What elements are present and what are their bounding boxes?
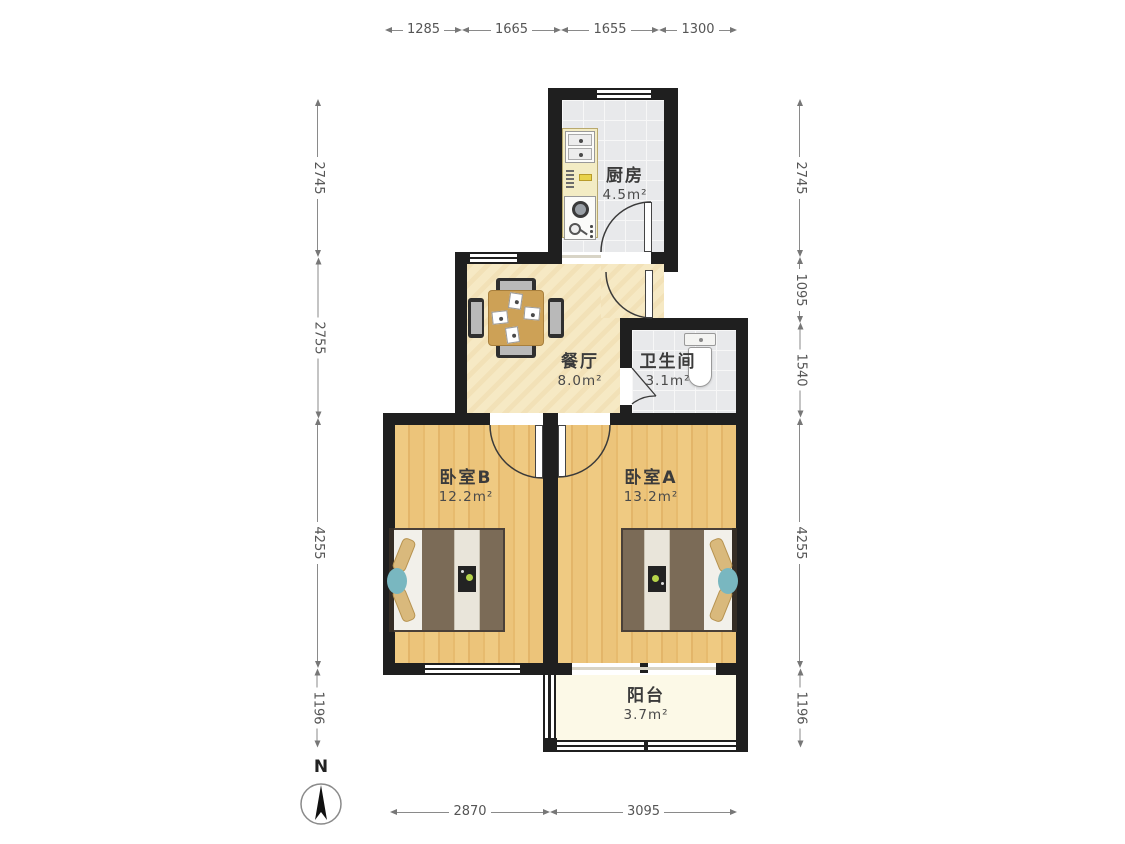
bedroom-b-name: 卧室B <box>439 468 494 489</box>
arrow-left-icon <box>797 99 803 106</box>
plate-dot <box>514 300 519 305</box>
arrow-left-icon <box>561 27 568 33</box>
dim-bottom-2: 3095 <box>550 804 737 820</box>
wall-segment <box>383 413 490 425</box>
dim-left-4: 1196 <box>310 669 326 748</box>
balcony-label: 阳台 3.7m² <box>623 686 668 724</box>
wall-segment <box>620 330 632 368</box>
sink-drain <box>579 139 583 143</box>
bed-bedroom-b <box>389 528 505 632</box>
arrow-right-icon <box>315 250 321 257</box>
arrow-right-icon <box>455 27 462 33</box>
plate-dot <box>511 334 516 339</box>
arrow-right-icon <box>652 27 659 33</box>
arrow-right-icon <box>315 741 321 748</box>
arrow-left-icon <box>390 809 397 815</box>
bed-bedroom-a <box>621 528 737 632</box>
kitchen-sink <box>565 131 595 163</box>
bedroom-a-label: 卧室A 13.2m² <box>624 468 679 506</box>
kitchen-door-leaf <box>644 202 652 252</box>
dim-value: 1300 <box>677 22 718 38</box>
arrow-left-icon <box>550 809 557 815</box>
dim-top-2: 1665 <box>462 22 561 38</box>
wall-segment <box>736 675 748 752</box>
wall-segment <box>716 663 748 675</box>
pan-handle <box>579 229 588 236</box>
bed-tablet <box>458 566 476 592</box>
sink-basin <box>568 134 592 146</box>
dim-value: 1095 <box>792 269 808 310</box>
arrow-left-icon <box>659 27 666 33</box>
arrow-left-icon <box>798 323 804 330</box>
bedroom-b-label: 卧室B 12.2m² <box>439 468 494 506</box>
bathroom-name: 卫生间 <box>640 352 697 373</box>
compass-rose-icon <box>296 776 346 828</box>
dim-value: 1540 <box>793 349 809 390</box>
bedside-accent <box>718 568 738 594</box>
wall-segment <box>558 663 572 675</box>
plate <box>508 292 523 310</box>
dim-value: 1285 <box>403 22 444 38</box>
arrow-right-icon <box>543 809 550 815</box>
dim-value: 2745 <box>792 157 808 198</box>
arrow-right-icon <box>798 741 804 748</box>
dim-value: 3095 <box>623 804 664 820</box>
bed-tablet <box>648 566 666 592</box>
arrow-right-icon <box>797 250 803 257</box>
arrow-right-icon <box>730 27 737 33</box>
balcony-opening-threshold <box>572 667 716 670</box>
dim-left-1: 2745 <box>310 99 326 257</box>
arrow-right-icon <box>730 809 737 815</box>
arrow-left-icon <box>798 669 804 676</box>
bedroom-a-name: 卧室A <box>624 468 679 489</box>
toilet-tank <box>684 333 716 346</box>
dim-value: 2745 <box>310 157 326 198</box>
tablet-green-dot <box>466 574 473 581</box>
entry-door-leaf <box>645 270 653 318</box>
wall-segment <box>620 318 748 330</box>
compass: N <box>296 758 346 830</box>
stove-knob <box>590 230 593 233</box>
dim-value: 1655 <box>589 22 630 38</box>
floor-plan: 厨房 4.5m² 餐厅 8.0m² 卫生间 3.1m² 卧室B 12.2m² 卧… <box>0 0 1125 844</box>
dining-name: 餐厅 <box>557 352 602 373</box>
arrow-right-icon <box>315 661 321 668</box>
wall-segment <box>664 88 678 272</box>
dim-value: 2755 <box>311 317 327 358</box>
dim-right-3: 1540 <box>793 323 809 418</box>
dim-left-2: 2755 <box>311 258 327 419</box>
wall-segment <box>736 318 748 675</box>
dining-chair <box>468 298 484 338</box>
dim-right-2: 1095 <box>792 257 808 323</box>
dining-area: 8.0m² <box>557 373 602 390</box>
bedside-accent <box>387 568 407 594</box>
chair-seat <box>471 302 482 334</box>
kitchen-opening-threshold <box>562 255 601 258</box>
counter-vent <box>566 170 574 188</box>
bathroom-area: 3.1m² <box>640 373 697 390</box>
balcony-area: 3.7m² <box>623 707 668 724</box>
sink-drain <box>579 153 583 157</box>
arrow-left-icon <box>385 27 392 33</box>
wall-segment <box>455 252 467 425</box>
dining-chair <box>548 298 564 338</box>
sink-basin <box>568 148 592 160</box>
arrow-right-icon <box>798 411 804 418</box>
arrow-left-icon <box>316 258 322 265</box>
arrow-left-icon <box>315 418 321 425</box>
arrow-left-icon <box>315 99 321 106</box>
wall-segment <box>548 88 562 264</box>
dim-value: 4255 <box>310 522 326 563</box>
balcony-side-window <box>543 675 556 738</box>
plate <box>491 310 508 325</box>
plate-dot <box>499 316 503 320</box>
tablet-green-dot <box>652 575 659 582</box>
wall-segment <box>517 252 562 264</box>
wall-segment <box>651 252 678 264</box>
balcony-name: 阳台 <box>623 686 668 707</box>
arrow-left-icon <box>462 27 469 33</box>
stove-burner <box>572 201 589 218</box>
bedroom-b-area: 12.2m² <box>439 489 494 506</box>
arrow-right-icon <box>797 661 803 668</box>
dim-top-1: 1285 <box>385 22 462 38</box>
bedroom-b-door-leaf <box>535 425 543 478</box>
bedroom-b-window <box>425 663 520 675</box>
dining-table <box>488 290 544 346</box>
dim-value: 1196 <box>793 687 809 728</box>
entry-floor <box>601 264 664 318</box>
plate <box>505 326 520 344</box>
wall-segment <box>383 663 425 675</box>
dim-value: 4255 <box>792 522 808 563</box>
dim-right-5: 1196 <box>793 669 809 748</box>
stove-knob <box>590 225 593 228</box>
wall-segment <box>543 413 558 675</box>
dim-value: 2870 <box>449 804 490 820</box>
chair-seat <box>550 302 561 334</box>
arrow-left-icon <box>797 257 803 264</box>
tablet-white-dot <box>661 582 664 585</box>
dim-right-4: 4255 <box>792 418 808 668</box>
bathroom-label: 卫生间 3.1m² <box>640 352 697 390</box>
kitchen-window <box>597 88 651 100</box>
plate <box>523 306 540 320</box>
kitchen-label: 厨房 4.5m² <box>602 166 647 204</box>
dim-value: 1665 <box>491 22 532 38</box>
wall-segment <box>543 738 557 752</box>
dim-left-3: 4255 <box>310 418 326 668</box>
wall-segment <box>520 663 543 675</box>
kitchen-area: 4.5m² <box>602 187 647 204</box>
arrow-left-icon <box>315 669 321 676</box>
toilet-button <box>699 338 703 342</box>
arrow-left-icon <box>797 418 803 425</box>
wall-segment <box>610 413 748 425</box>
dim-bottom-1: 2870 <box>390 804 550 820</box>
dim-value: 1196 <box>310 687 326 728</box>
bedroom-a-door-leaf <box>558 425 566 477</box>
dim-top-3: 1655 <box>561 22 659 38</box>
tablet-white-dot <box>461 570 464 573</box>
plate-dot <box>531 312 535 316</box>
counter-item <box>579 174 592 181</box>
dining-window <box>470 252 517 264</box>
bedroom-a-area: 13.2m² <box>624 489 679 506</box>
stove-knob <box>590 235 593 238</box>
balcony-window-mullion <box>644 740 648 752</box>
dining-label: 餐厅 8.0m² <box>557 352 602 390</box>
compass-north-label: N <box>296 758 346 776</box>
dim-top-4: 1300 <box>659 22 737 38</box>
kitchen-stove <box>564 196 596 240</box>
arrow-right-icon <box>554 27 561 33</box>
dim-right-1: 2745 <box>792 99 808 257</box>
kitchen-name: 厨房 <box>602 166 647 187</box>
